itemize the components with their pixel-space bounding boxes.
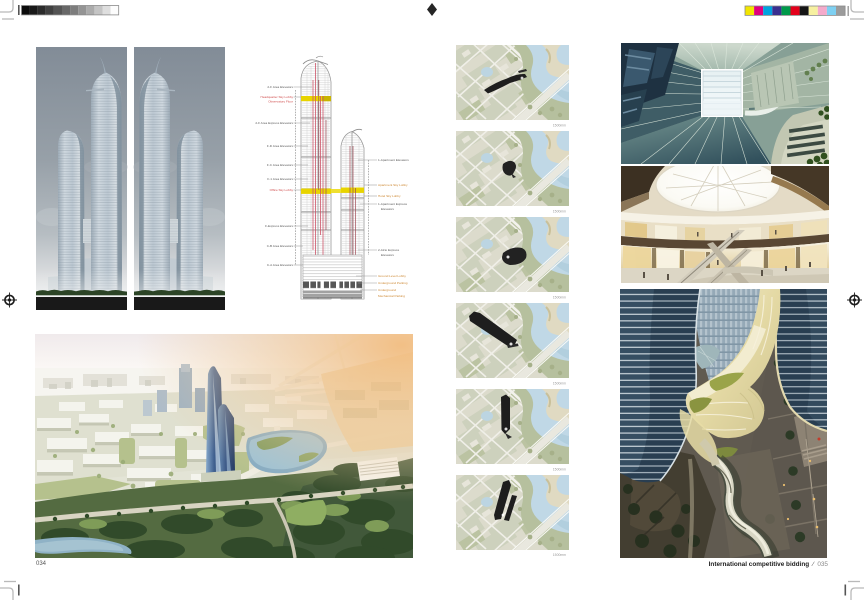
svg-text:Underground: Underground bbox=[378, 288, 396, 292]
svg-text:Hotel Sky Lobby: Hotel Sky Lobby bbox=[378, 194, 401, 198]
svg-text:F-1 Area Elevators: F-1 Area Elevators bbox=[267, 177, 293, 181]
svg-text:1-Apartment Elevators: 1-Apartment Elevators bbox=[378, 158, 409, 162]
svg-text:Apartment Sky Lobby: Apartment Sky Lobby bbox=[378, 183, 408, 187]
svg-text:2-F Area Elevators: 2-F Area Elevators bbox=[267, 85, 293, 89]
svg-text:2-F Area Express Elevators: 2-F Area Express Elevators bbox=[255, 121, 293, 125]
svg-text:1-Apartment Express: 1-Apartment Express bbox=[378, 202, 408, 206]
svg-text:Mechanical Parking: Mechanical Parking bbox=[378, 294, 405, 298]
svg-text:1500mm: 1500mm bbox=[553, 210, 566, 214]
svg-text:1500mm: 1500mm bbox=[553, 296, 566, 300]
svg-text:1500mm: 1500mm bbox=[553, 553, 566, 557]
svg-text:2-Atrio Express: 2-Atrio Express bbox=[378, 248, 400, 252]
svg-text:Headquarter Sky Lobby: Headquarter Sky Lobby bbox=[260, 95, 293, 99]
svg-text:Office Sky Lobby: Office Sky Lobby bbox=[270, 188, 294, 192]
svg-text:Observatory Floor: Observatory Floor bbox=[268, 100, 293, 104]
svg-text:F-C Area Elevators: F-C Area Elevators bbox=[267, 163, 294, 167]
svg-text:1500mm: 1500mm bbox=[553, 124, 566, 128]
svg-text:1500mm: 1500mm bbox=[553, 382, 566, 386]
svg-text:F-D Area Elevators: F-D Area Elevators bbox=[267, 144, 294, 148]
svg-text:Elevators: Elevators bbox=[381, 207, 394, 211]
svg-text:F-Express Elevators: F-Express Elevators bbox=[265, 224, 293, 228]
svg-text:C-A Area Elevators: C-A Area Elevators bbox=[267, 263, 294, 267]
svg-text:Ground Level Lobby: Ground Level Lobby bbox=[378, 274, 406, 278]
svg-text:1500mm: 1500mm bbox=[553, 468, 566, 472]
svg-text:Elevators: Elevators bbox=[381, 253, 394, 257]
svg-text:C-B Area Elevators: C-B Area Elevators bbox=[267, 244, 294, 248]
svg-text:Underground Parking: Underground Parking bbox=[378, 281, 408, 285]
